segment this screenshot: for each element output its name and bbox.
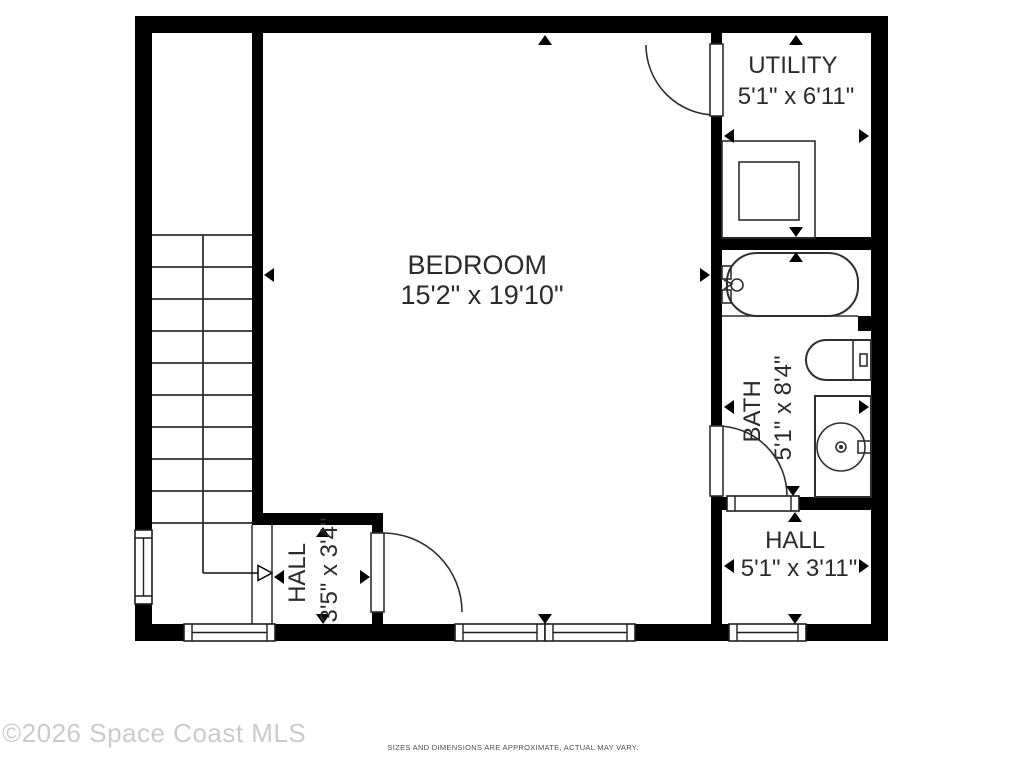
bedroom-label: BEDROOM 15'2" x 19'10" — [400, 250, 563, 310]
bath-label: BATH 5'1" x 8'4" — [739, 356, 797, 461]
door-leaf — [710, 44, 723, 116]
door-hall-bedroom — [371, 533, 462, 612]
floor-plan-drawing: BEDROOM 15'2" x 19'10" UTILITY 5'1" x 6'… — [0, 0, 1024, 768]
hall-left-label: HALL 3'5" x 3'4" — [284, 518, 343, 623]
room-labels: BEDROOM 15'2" x 19'10" UTILITY 5'1" x 6'… — [284, 52, 857, 622]
doors — [371, 44, 787, 612]
wall-bedroom-right — [711, 33, 722, 624]
window-bottom-right — [729, 624, 806, 641]
disclaimer: SIZES AND DIMENSIONS ARE APPROXIMATE, AC… — [388, 743, 639, 752]
arrow-left-icon — [274, 570, 284, 584]
arrow-left-icon — [724, 559, 734, 573]
bathtub-icon — [722, 253, 858, 316]
arrow-up-icon — [789, 35, 803, 45]
arrow-left-icon — [724, 400, 734, 414]
arrow-up-icon — [788, 512, 802, 522]
wall-right — [871, 16, 888, 641]
door-leaf — [710, 426, 723, 496]
toilet-icon — [806, 340, 871, 380]
door-leaf — [371, 533, 384, 612]
wall-utility-bottom — [711, 237, 871, 250]
wall-tub-stub — [858, 316, 871, 331]
arrow-down-icon — [786, 486, 800, 496]
window-bottom-center-2 — [545, 624, 635, 641]
opening-bath-hall — [727, 496, 799, 511]
door-swing-arc — [383, 533, 462, 612]
windows — [135, 496, 806, 641]
arrow-down-icon — [788, 614, 802, 624]
door-utility — [646, 44, 723, 116]
arrow-up-icon — [538, 35, 552, 45]
stair-direction-arrow-icon — [258, 566, 272, 581]
arrow-down-icon — [538, 614, 552, 624]
floor-plan-page: BEDROOM 15'2" x 19'10" UTILITY 5'1" x 6'… — [0, 0, 1024, 768]
arrow-right-icon — [360, 570, 370, 584]
hall-right-label: HALL 5'1" x 3'11" — [741, 527, 858, 582]
washer-icon — [722, 141, 815, 238]
window-bottom-center-1 — [455, 624, 545, 641]
door-swing-arc — [646, 45, 716, 115]
arrow-right-icon — [859, 129, 869, 143]
wall-top — [135, 16, 888, 33]
arrow-right-icon — [859, 559, 869, 573]
arrow-down-icon — [789, 227, 803, 237]
window-bottom-left — [184, 624, 275, 641]
wall-stairwell-right — [252, 33, 263, 525]
arrow-left-icon — [264, 268, 274, 282]
watermark: ©2026 Space Coast MLS — [2, 718, 306, 748]
arrow-right-icon — [700, 268, 710, 282]
utility-label: UTILITY 5'1" x 6'11" — [738, 52, 855, 110]
window-left-wall — [135, 530, 152, 604]
footer: ©2026 Space Coast MLS SIZES AND DIMENSIO… — [2, 718, 639, 752]
